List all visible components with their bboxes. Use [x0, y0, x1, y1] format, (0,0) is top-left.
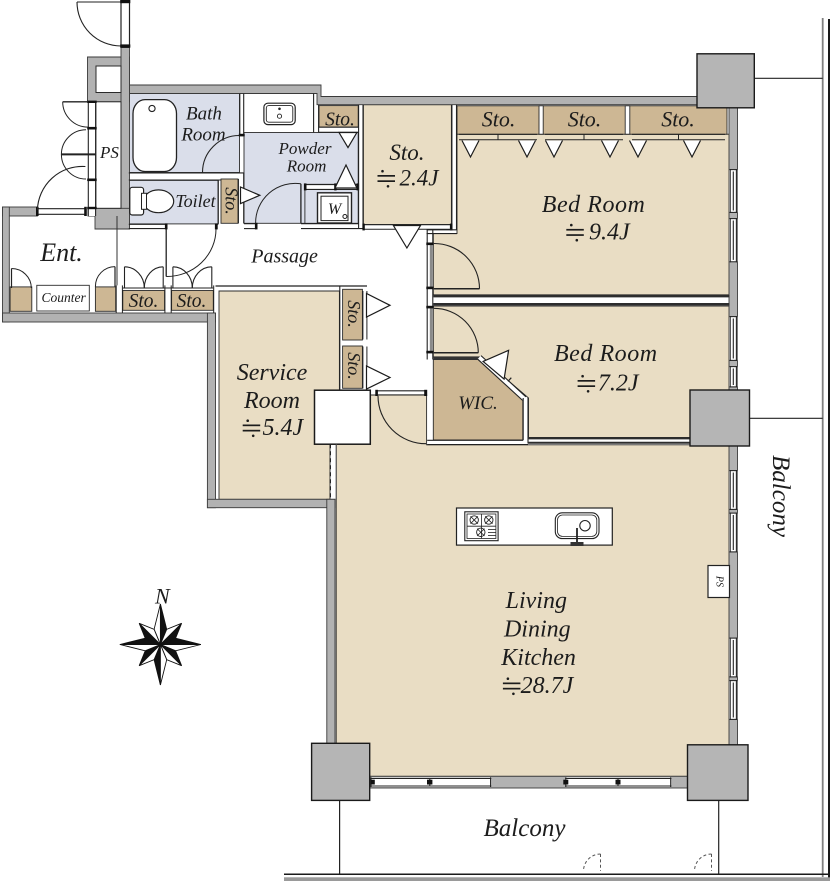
svg-text:WIC.: WIC.	[458, 393, 498, 414]
svg-text:Balcony: Balcony	[767, 455, 794, 538]
svg-text:PS: PS	[99, 143, 119, 162]
svg-text:PS: PS	[714, 575, 725, 587]
svg-text:Dining: Dining	[503, 617, 571, 643]
svg-text:9.4J: 9.4J	[589, 219, 631, 245]
svg-text:Bath: Bath	[186, 104, 222, 125]
svg-text:Balcony: Balcony	[484, 815, 567, 842]
svg-text:Ent.: Ent.	[39, 238, 83, 267]
svg-text:Room: Room	[286, 157, 327, 176]
svg-text:Bed Room: Bed Room	[542, 192, 646, 218]
svg-text:Living: Living	[505, 588, 567, 614]
svg-text:Sto.: Sto.	[177, 291, 207, 312]
svg-text:Room: Room	[243, 388, 300, 414]
svg-text:Sto.: Sto.	[221, 187, 241, 215]
svg-text:Sto.: Sto.	[344, 352, 364, 380]
svg-text:28.7J: 28.7J	[521, 673, 575, 699]
svg-text:Sto.: Sto.	[661, 107, 695, 132]
svg-text:7.2J: 7.2J	[598, 371, 640, 397]
svg-text:Counter: Counter	[41, 290, 86, 305]
svg-text:Toilet: Toilet	[175, 191, 216, 211]
svg-text:Sto.: Sto.	[389, 140, 424, 165]
svg-text:N: N	[154, 584, 171, 609]
svg-text:Service: Service	[237, 360, 308, 386]
svg-text:2.4J: 2.4J	[400, 166, 441, 191]
svg-text:Sto.: Sto.	[325, 109, 355, 130]
svg-text:Powder: Powder	[278, 139, 332, 158]
svg-text:Kitchen: Kitchen	[500, 645, 576, 671]
svg-text:Passage: Passage	[250, 246, 318, 268]
svg-text:Bed Room: Bed Room	[554, 341, 658, 367]
svg-text:Room: Room	[180, 125, 225, 146]
svg-text:Sto.: Sto.	[344, 300, 364, 328]
svg-text:W: W	[328, 201, 343, 218]
svg-text:5.4J: 5.4J	[263, 415, 305, 441]
svg-text:Sto.: Sto.	[482, 107, 516, 132]
svg-text:Sto.: Sto.	[568, 107, 602, 132]
svg-text:Sto.: Sto.	[129, 291, 159, 312]
